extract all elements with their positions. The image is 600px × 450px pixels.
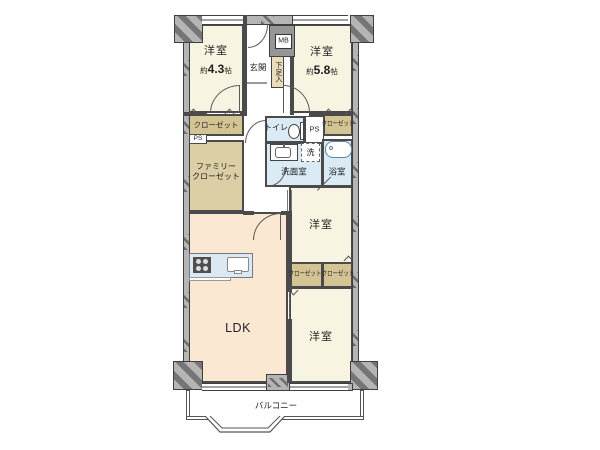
- stove-burner: [196, 259, 201, 264]
- wall-hatch: [353, 216, 358, 232]
- shoe-cabinet-label: 下足入: [273, 62, 282, 83]
- pipe-shaft-center-label: PS: [309, 124, 319, 133]
- label-entrance: 玄関: [249, 63, 266, 74]
- wall-hatch: [353, 162, 358, 178]
- bedroom-tr-name: 洋室: [306, 46, 338, 60]
- label-bedroom-middle: 洋室: [309, 219, 333, 233]
- wall-corner-top-left: [174, 15, 203, 43]
- label-bedroom-bottom: 洋室: [309, 331, 333, 345]
- wall-right: [352, 42, 359, 362]
- stove-burner: [203, 259, 208, 264]
- wall-ldk-bedroommid: [287, 211, 292, 292]
- wall-hatch: [184, 60, 189, 76]
- wall-hatch: [184, 176, 189, 192]
- wall-corner-top-right: [350, 15, 374, 43]
- wall-hatch: [184, 338, 189, 352]
- stove-burner: [203, 266, 208, 271]
- window-bottom-ldk: [202, 383, 266, 391]
- door-arc-entrance: [248, 25, 268, 48]
- window-bottom-bedroom: [290, 383, 348, 391]
- toilet-bowl-icon: [288, 124, 300, 139]
- wall-hatch: [268, 378, 288, 387]
- label-bedroom-top-right: 洋室 約5.8帖: [306, 46, 338, 80]
- wall-hatch: [184, 234, 189, 250]
- washer-label: 洗: [307, 148, 315, 158]
- wall-hatch: [184, 118, 189, 134]
- label-toilet: トイレ: [264, 123, 288, 133]
- vanity-bowl-icon: [275, 147, 291, 158]
- sliding-door-line: [291, 190, 292, 211]
- wall-entrance-left: [243, 15, 247, 115]
- window-top-right: [293, 15, 348, 25]
- vanity-tap-icon: [283, 144, 285, 148]
- wall-corner-bottom-left: [173, 361, 203, 390]
- wall-hall-ldk-left: [243, 211, 254, 215]
- label-bedroom-top-left: 洋室 約4.3帖: [200, 45, 232, 79]
- label-bathroom: 浴室: [328, 167, 345, 178]
- bathtub-drain-icon: [329, 146, 333, 150]
- counter-lip: [189, 277, 231, 281]
- family-closet-line1: ファミリー: [192, 162, 240, 172]
- wall-ldk-bedroombottom: [287, 319, 292, 383]
- family-closet-line2: クローゼット: [192, 172, 240, 182]
- label-closet-mid-right: クローゼット: [321, 271, 354, 280]
- label-ldk: LDK: [225, 321, 251, 337]
- label-family-closet: ファミリー クローゼット: [192, 162, 240, 182]
- label-closet-top-left: クローゼット: [194, 120, 239, 129]
- bedroom-tl-name: 洋室: [200, 45, 232, 59]
- window-top-left: [202, 15, 244, 25]
- label-washroom: 洗面室: [281, 167, 307, 178]
- meter-box-label: MB: [278, 37, 289, 46]
- wall-hatch: [261, 16, 274, 24]
- label-closet-top-right: クローゼット: [322, 121, 355, 130]
- sliding-door-line: [287, 190, 288, 211]
- wall-corner-bottom-right: [350, 361, 378, 390]
- pipe-shaft-left-label: PS: [194, 135, 203, 143]
- folding-door-dashed-line: [289, 292, 290, 319]
- wall-hatch: [353, 330, 358, 346]
- door-arc-toilet: [245, 120, 266, 143]
- wall-hall-top: [240, 112, 247, 116]
- toilet-tank-icon: [300, 122, 304, 140]
- label-closet-mid-left: クローゼット: [289, 271, 322, 280]
- bedroom-tl-size: 約4.3帖: [200, 59, 232, 79]
- entrance-step-line: [247, 82, 267, 84]
- balcony-notch: [196, 416, 292, 438]
- wall-hatch: [184, 292, 189, 308]
- label-balcony: バルコニー: [255, 401, 297, 412]
- stove-burner: [196, 266, 201, 271]
- wall-left: [183, 42, 190, 362]
- kitchen-sink-notch: [234, 270, 242, 274]
- floor-plan-canvas: MB 下足入 PS PS 洗 洋室: [0, 0, 600, 450]
- bedroom-tr-size: 約5.8帖: [306, 60, 338, 80]
- wall-hatch: [353, 55, 358, 71]
